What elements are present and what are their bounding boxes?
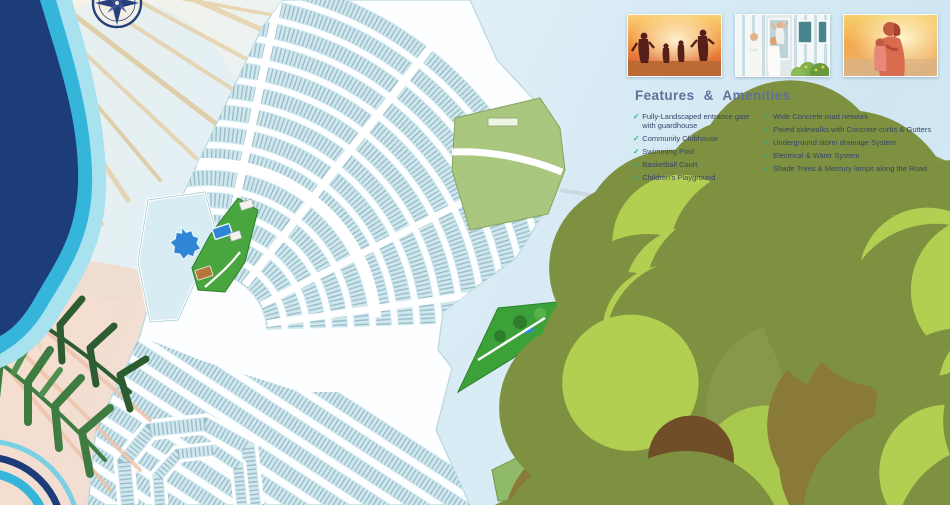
family-beach-sunset-photo	[627, 14, 722, 77]
poster-canvas: Features & Amenities ✓ Fully-Landscaped …	[0, 0, 950, 505]
mother-child-sunset-photo	[843, 14, 938, 77]
sunset-photo-art	[844, 15, 937, 76]
beach-photo-art	[628, 15, 721, 76]
check-icon: ✓	[764, 138, 770, 147]
photo-strip	[627, 14, 938, 77]
feature-text: Fully-Landscaped entrance gate with guar…	[642, 112, 754, 130]
feature-text: Wide Concrete road network	[773, 112, 868, 121]
feature-text: Shade Trees & Mercury lamps along the Ro…	[773, 164, 927, 173]
check-icon: ✓	[633, 147, 639, 156]
open-space-sign	[488, 118, 518, 126]
check-icon: ✓	[764, 125, 770, 134]
feature-item: ✓ Underground storm drainage System	[764, 138, 945, 147]
feature-text: Electrical & Water System	[773, 151, 859, 160]
feature-text: Basketball Court	[642, 160, 697, 169]
features-heading: Features & Amenities	[635, 88, 945, 103]
feature-item: ✓ Shade Trees & Mercury lamps along the …	[764, 164, 945, 173]
feature-text: Paved sidewalks with Concrete curbs & Gu…	[773, 125, 931, 134]
feature-item: ✓ Wide Concrete road network	[764, 112, 945, 121]
feature-item: ✓ Basketball Court	[633, 160, 754, 169]
features-left-column: ✓ Fully-Landscaped entrance gate with gu…	[633, 112, 754, 186]
check-icon: ✓	[633, 134, 639, 143]
check-icon: ✓	[764, 164, 770, 173]
feature-item: ✓ Electrical & Water System	[764, 151, 945, 160]
feature-item: ✓ Paved sidewalks with Concrete curbs & …	[764, 125, 945, 134]
feature-item: ✓ Community Clubhouse	[633, 134, 754, 143]
check-icon: ✓	[764, 151, 770, 160]
check-icon: ✓	[764, 112, 770, 121]
features-right-column: ✓ Wide Concrete road network ✓ Paved sid…	[764, 112, 945, 186]
feature-item: ✓ Swimming Pool	[633, 147, 754, 156]
feature-item: ✓ Children's Playground	[633, 173, 754, 182]
feature-text: Underground storm drainage System	[773, 138, 896, 147]
check-icon: ✓	[633, 173, 639, 182]
feature-text: Community Clubhouse	[642, 134, 718, 143]
feature-item: ✓ Fully-Landscaped entrance gate with gu…	[633, 112, 754, 130]
features-panel: Features & Amenities ✓ Fully-Landscaped …	[633, 88, 945, 186]
feature-text: Swimming Pool	[642, 147, 694, 156]
check-icon: ✓	[633, 160, 639, 169]
check-icon: ✓	[633, 112, 639, 130]
family-new-house-photo	[735, 14, 830, 77]
feature-text: Children's Playground	[642, 173, 715, 182]
house-photo-art	[736, 15, 829, 76]
